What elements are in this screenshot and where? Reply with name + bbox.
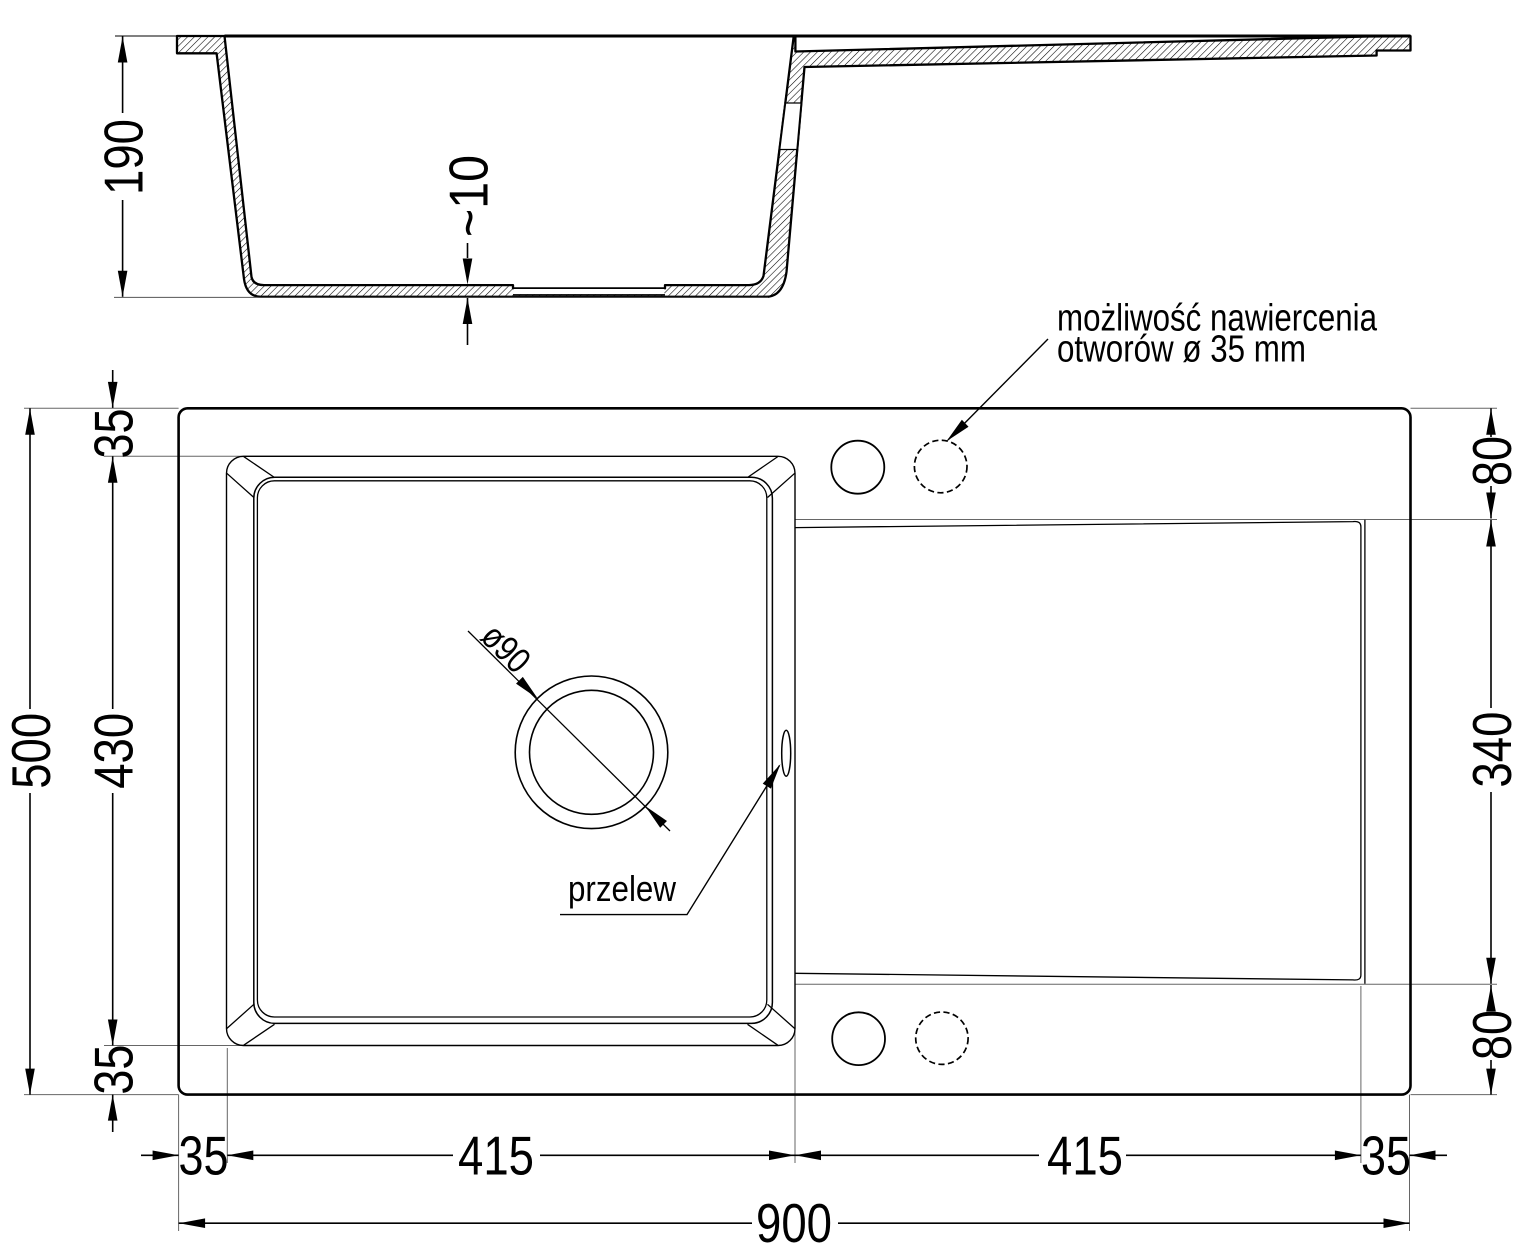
svg-text:500: 500 (0, 713, 62, 789)
svg-text:80: 80 (1461, 1010, 1523, 1060)
svg-text:35: 35 (83, 409, 145, 459)
svg-text:~10: ~10 (438, 155, 500, 237)
svg-text:35: 35 (1361, 1124, 1411, 1186)
svg-text:35: 35 (179, 1124, 229, 1186)
svg-text:340: 340 (1461, 712, 1523, 788)
svg-text:80: 80 (1461, 436, 1523, 486)
svg-text:430: 430 (83, 713, 145, 789)
svg-text:przelew: przelew (568, 868, 677, 909)
svg-text:415: 415 (458, 1124, 534, 1186)
svg-text:415: 415 (1047, 1124, 1123, 1186)
svg-text:190: 190 (93, 119, 155, 195)
svg-text:35: 35 (83, 1045, 145, 1095)
svg-text:otworów ø 35 mm: otworów ø 35 mm (1057, 329, 1306, 371)
svg-text:900: 900 (756, 1192, 832, 1248)
